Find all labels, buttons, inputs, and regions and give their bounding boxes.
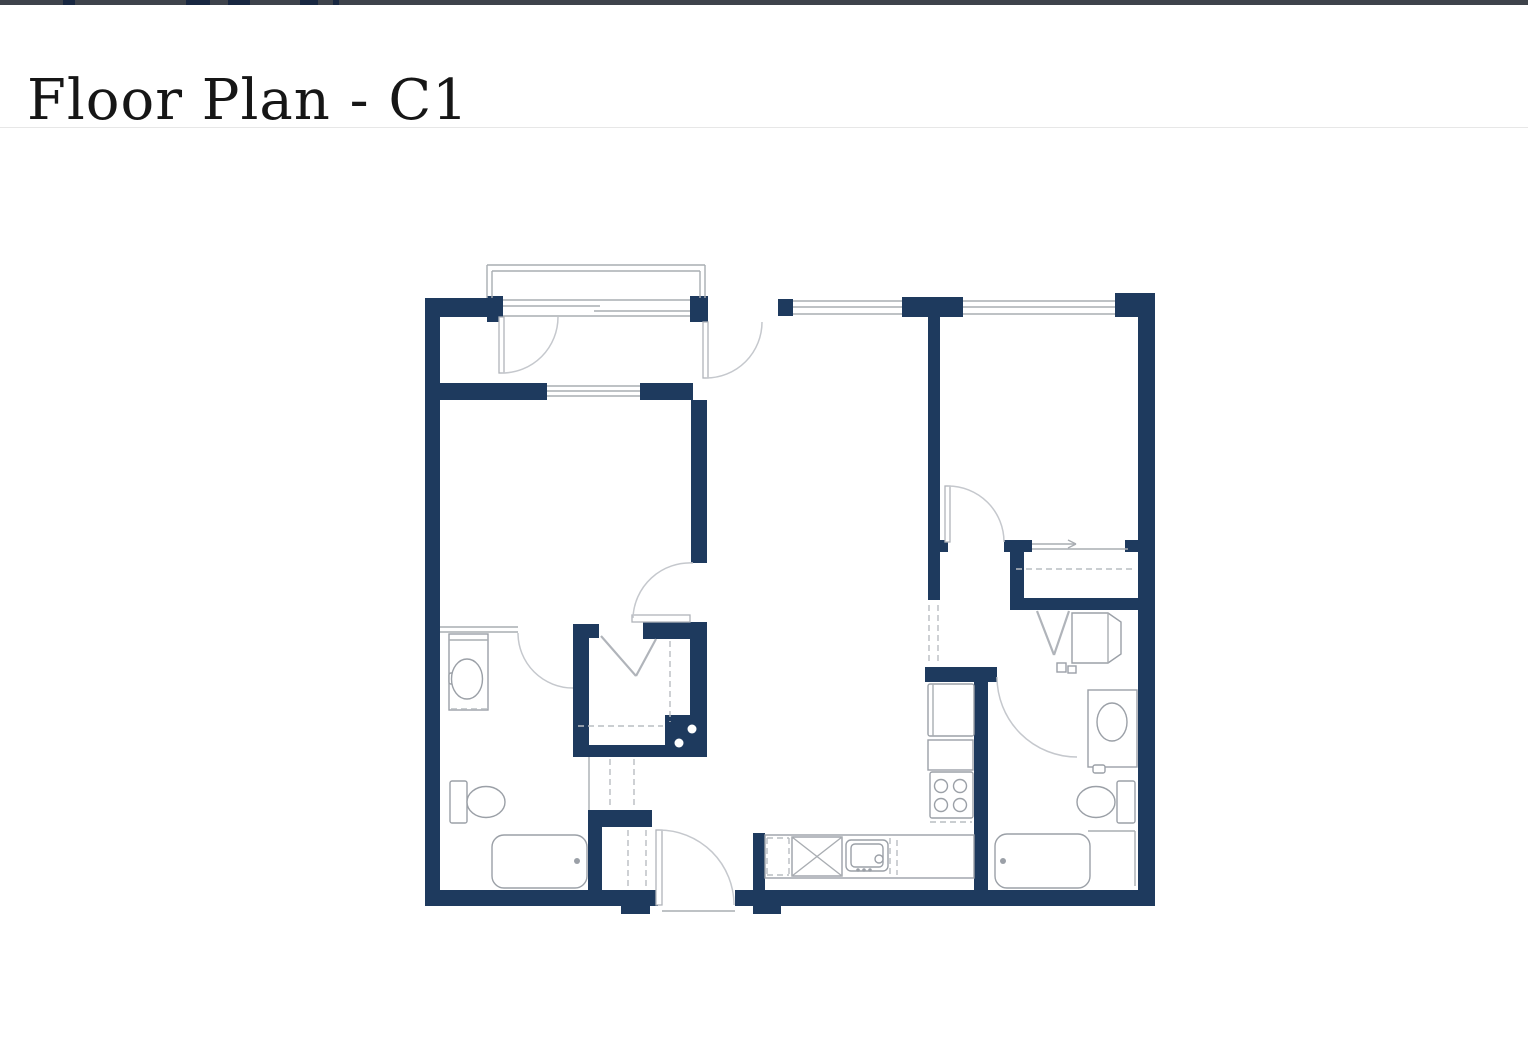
fixture-oval xyxy=(935,780,948,793)
wall xyxy=(778,299,793,316)
header-divider xyxy=(0,127,1528,128)
fixture xyxy=(995,834,1090,888)
wall xyxy=(573,624,589,757)
door-leaf xyxy=(499,317,504,373)
fixture xyxy=(930,772,973,818)
wall xyxy=(621,892,650,914)
top-bar-mark xyxy=(300,0,318,5)
fixture-dot xyxy=(856,868,860,872)
wall xyxy=(1125,540,1138,552)
wall xyxy=(753,833,765,890)
door-leaf xyxy=(632,615,690,622)
door-swing-arc xyxy=(706,322,762,378)
door-swing-arc xyxy=(948,486,1004,542)
wall xyxy=(1138,293,1155,906)
floor-plan-svg xyxy=(415,255,1170,925)
door-leaf xyxy=(703,322,708,378)
door-leaf xyxy=(656,830,662,905)
fixture-oval xyxy=(875,855,883,863)
fixture-oval xyxy=(452,659,483,699)
floor-plan-image xyxy=(415,255,1170,925)
page-title: Floor Plan - C1 xyxy=(27,68,469,133)
fixture-dot xyxy=(574,858,580,864)
bifold-door xyxy=(1037,611,1054,655)
bifold-door xyxy=(1054,611,1069,655)
fixture-oval xyxy=(467,787,505,818)
washer-dryer xyxy=(1072,613,1121,663)
door-swing-arc xyxy=(502,317,558,373)
wall xyxy=(587,624,599,638)
door-swing-arc xyxy=(518,633,573,688)
wall xyxy=(640,383,693,400)
wall xyxy=(691,400,707,563)
wall xyxy=(588,810,602,890)
fixture xyxy=(1117,781,1135,823)
wall xyxy=(902,297,963,317)
fixture-oval xyxy=(935,799,948,812)
top-bar-mark xyxy=(186,0,210,5)
wall xyxy=(690,296,708,322)
door-swing-arc xyxy=(997,677,1077,757)
fixture-dot xyxy=(862,868,866,872)
fixture xyxy=(1068,666,1076,673)
door-swing-arc xyxy=(633,563,693,618)
fixture xyxy=(1093,765,1105,773)
top-bar-mark xyxy=(333,0,339,5)
door-leaf xyxy=(945,486,950,542)
wall xyxy=(735,890,1155,906)
wall xyxy=(974,682,988,890)
fixture xyxy=(928,684,974,736)
bifold-door xyxy=(636,639,656,676)
wall xyxy=(1010,598,1140,610)
wall xyxy=(690,622,707,715)
fixture xyxy=(1057,663,1066,672)
wall xyxy=(425,383,547,400)
fixture-dot xyxy=(868,868,872,872)
door-swing-arc xyxy=(659,830,734,905)
wall-dot xyxy=(688,725,697,734)
fixture xyxy=(450,781,467,823)
fixture-oval xyxy=(1097,703,1127,741)
wall xyxy=(925,667,997,682)
fixture xyxy=(492,835,587,888)
top-bar-mark xyxy=(63,0,75,5)
top-bar-mark xyxy=(228,0,250,5)
fixture xyxy=(928,740,973,770)
wall xyxy=(665,715,707,757)
fixture-oval xyxy=(954,799,967,812)
wall xyxy=(753,892,781,914)
wall xyxy=(928,317,940,600)
fixture-oval xyxy=(954,780,967,793)
bifold-door xyxy=(601,636,636,676)
wall-dot xyxy=(675,739,684,748)
top-bar xyxy=(0,0,1528,5)
fixture-dot xyxy=(1000,858,1006,864)
wall xyxy=(1004,540,1032,552)
fixture-oval xyxy=(1077,787,1115,818)
